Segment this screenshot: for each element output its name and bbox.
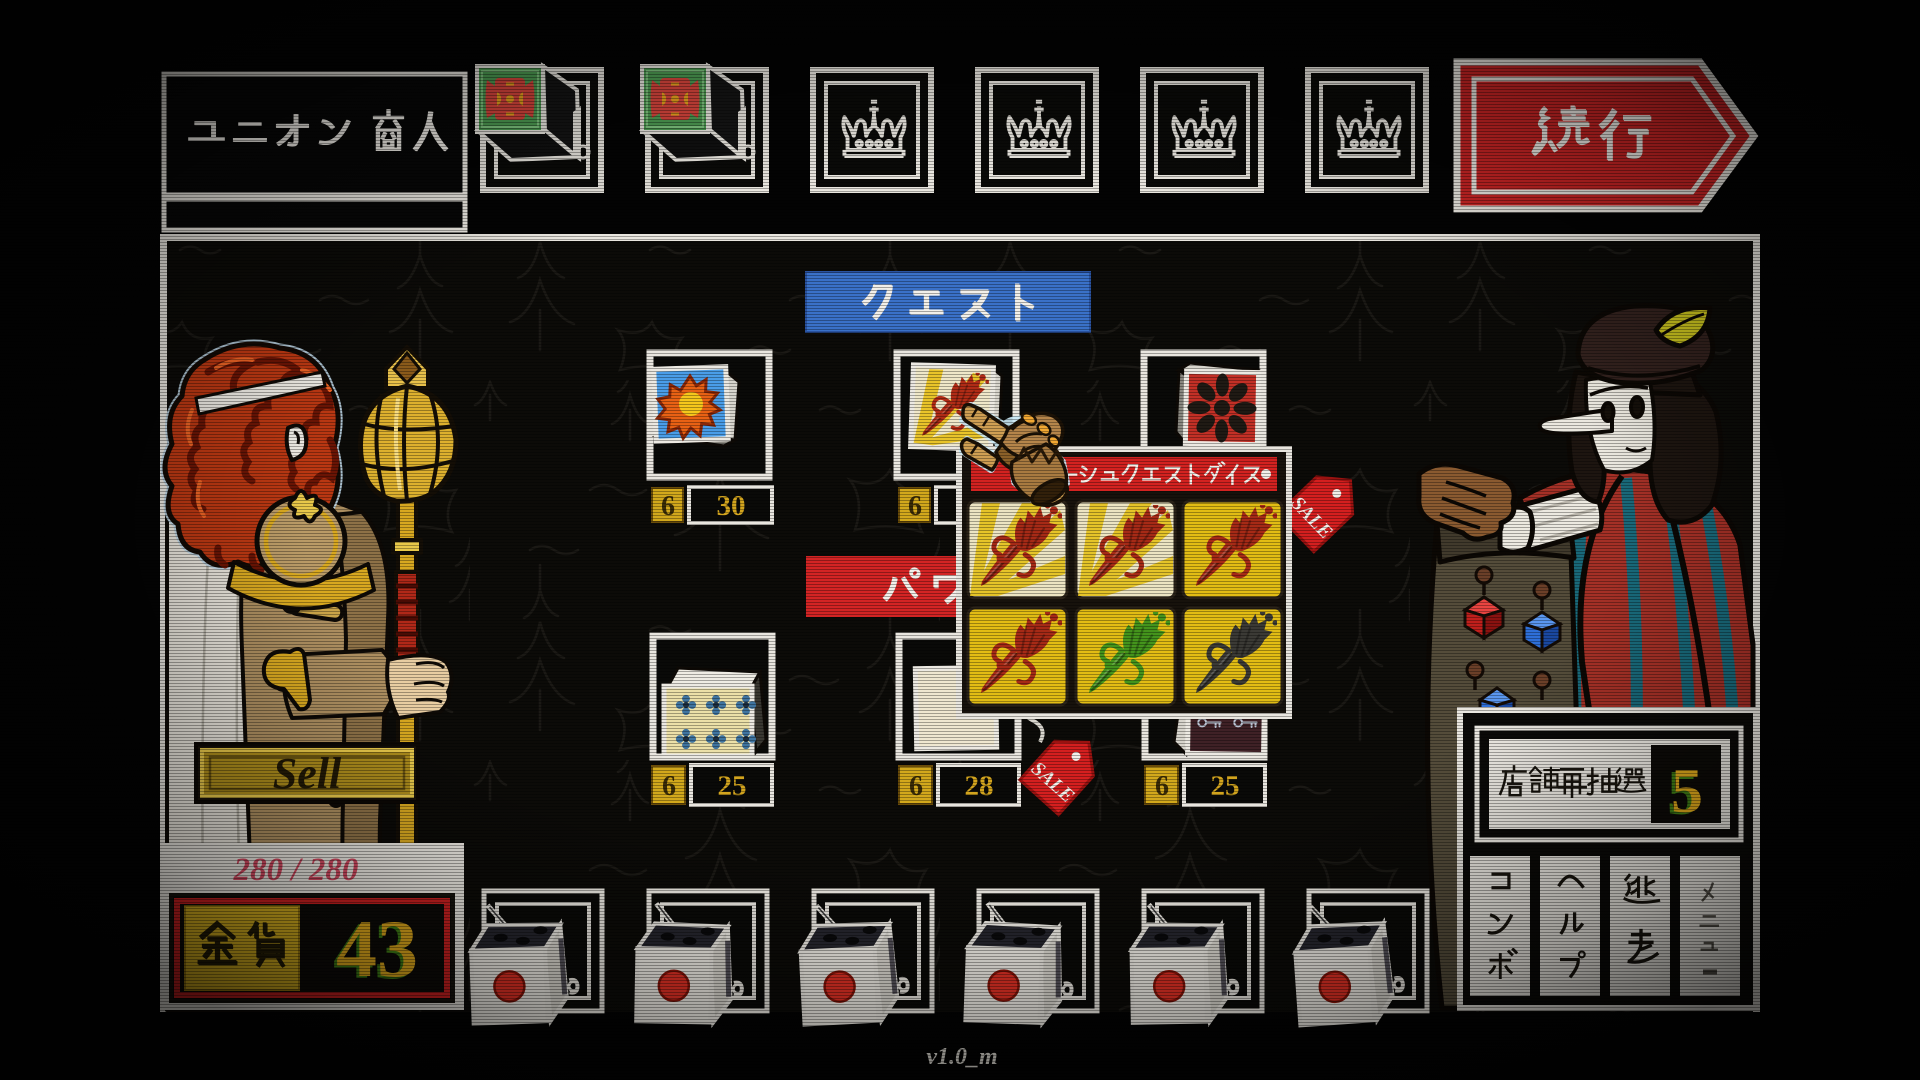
svg-text:25: 25 (718, 770, 747, 802)
svg-text:43: 43 (336, 903, 418, 994)
svg-text:28: 28 (965, 770, 994, 802)
svg-text:6: 6 (662, 771, 676, 802)
svg-text:25: 25 (1211, 770, 1240, 802)
svg-text:5: 5 (1671, 755, 1703, 826)
svg-text:30: 30 (717, 490, 746, 522)
svg-text:280 / 280: 280 / 280 (233, 852, 359, 888)
svg-text:Sell: Sell (273, 749, 342, 798)
svg-text:6: 6 (661, 491, 675, 522)
svg-text:6: 6 (909, 771, 923, 802)
svg-text:6: 6 (1155, 771, 1169, 802)
svg-text:6: 6 (908, 491, 922, 522)
svg-text:v1.0_m: v1.0_m (926, 1044, 997, 1070)
